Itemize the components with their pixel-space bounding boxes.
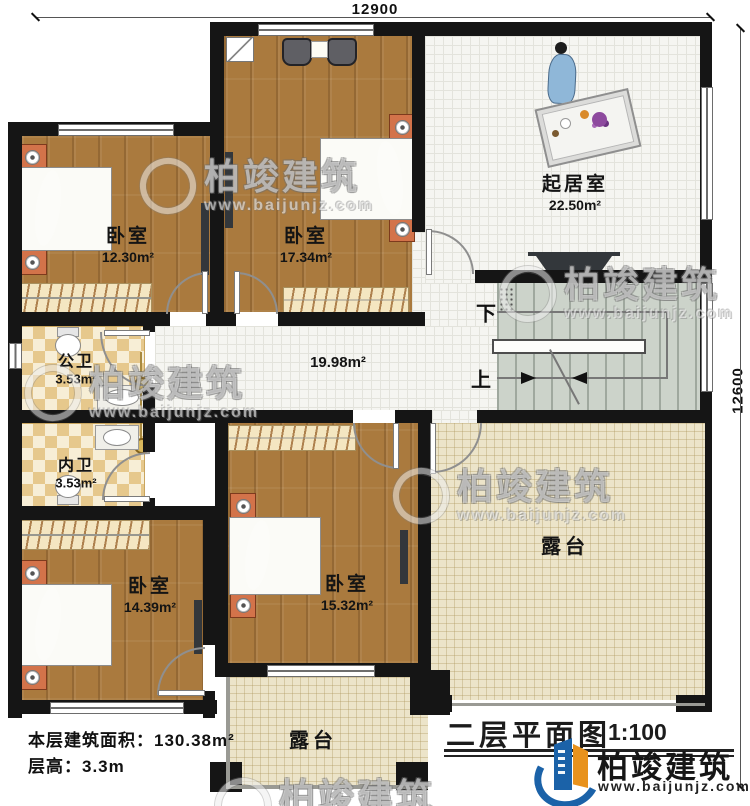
room-label-terrace-bottom: 露台	[289, 729, 337, 753]
tv-stand	[528, 252, 620, 256]
wall-bedroom-bl-right-a	[203, 506, 215, 645]
tv	[225, 152, 233, 228]
window	[58, 124, 174, 136]
wardrobe	[228, 425, 356, 451]
wall-hall-bottom-post	[395, 410, 432, 423]
door-leaf	[393, 423, 399, 469]
stair-handrail	[492, 339, 646, 354]
stair-landing-line-top	[497, 311, 668, 313]
door-leaf	[104, 496, 150, 502]
floor-height-text: 层高：3.3m	[28, 752, 125, 777]
room-label-bath-public: 公卫 3.53m²	[55, 353, 96, 388]
room-label-bedroom-tm: 卧室 17.34m²	[280, 226, 332, 266]
room-name: 露台	[289, 729, 337, 753]
wardrobe	[18, 283, 152, 313]
bed	[18, 584, 112, 666]
wall-bath-right-b	[143, 387, 155, 452]
room-area: 3.53m²	[55, 372, 96, 388]
window	[267, 665, 375, 677]
stair-arrow-left	[572, 372, 587, 384]
wardrobe	[20, 520, 150, 550]
flower-purple	[592, 112, 607, 127]
window	[258, 24, 374, 36]
stair-landing-line-right	[666, 311, 668, 379]
floor-terrace-doorway	[432, 410, 477, 423]
room-name: 卧室	[102, 226, 154, 249]
room-area: 15.32m²	[321, 597, 373, 614]
floor-terrace-right	[430, 423, 705, 700]
dimension-top-line	[35, 17, 711, 18]
tv	[400, 530, 408, 584]
dimension-right: 12600	[730, 361, 747, 421]
person-body	[547, 53, 578, 104]
person-head	[555, 42, 567, 54]
chair	[327, 38, 357, 66]
room-area: 14.39m²	[124, 599, 176, 616]
sink	[95, 425, 139, 450]
door-leaf	[202, 271, 208, 314]
wall-hall-bottom	[155, 410, 353, 423]
room-name: 卧室	[124, 576, 176, 599]
flower-orange	[580, 110, 589, 119]
room-name: 露台	[541, 535, 589, 559]
brand-website: www.baijunjz.com	[598, 778, 750, 794]
wall-hall-top-b	[206, 312, 236, 326]
chair	[282, 38, 312, 66]
room-area: 19.98m²	[310, 354, 366, 372]
wall-bedroom-bm-left	[215, 410, 228, 677]
nightstand	[18, 560, 47, 586]
wardrobe	[283, 287, 409, 313]
door-leaf	[158, 690, 205, 696]
logo-building-blue	[554, 736, 572, 790]
shaft-symbol	[226, 37, 254, 62]
window	[50, 702, 184, 714]
door-leaf	[104, 330, 150, 336]
nightstand	[230, 493, 256, 519]
stair-arrow-right	[521, 372, 536, 384]
dimension-right-line	[740, 28, 741, 788]
wall-living-stairs-divider	[475, 270, 712, 283]
room-label-bedroom-bm: 卧室 15.32m²	[321, 574, 373, 614]
wall-stairs-bottom	[477, 410, 712, 423]
stairs-down-label: 下	[476, 298, 496, 327]
door-leaf	[234, 271, 240, 314]
window	[701, 283, 713, 392]
room-area: 3.53m²	[55, 476, 96, 492]
wall-hall-top-c	[278, 312, 425, 326]
side-table	[311, 41, 328, 58]
brand-logo-icon	[534, 734, 592, 798]
room-area: 12.30m²	[102, 249, 154, 266]
nightstand	[18, 249, 47, 275]
logo-building-orange	[573, 742, 588, 788]
wall-bedroom-bl-top	[8, 506, 217, 520]
room-name: 卧室	[321, 574, 373, 597]
table-cup	[552, 130, 559, 137]
stair-dot-hatch	[499, 287, 515, 312]
stairs-up-label: 上	[471, 364, 491, 393]
door-leaf	[426, 229, 432, 275]
terrace-post	[430, 695, 452, 712]
wall-bath-right-a	[143, 312, 155, 332]
wall-bath-divider	[8, 410, 155, 423]
dimension-top: 12900	[340, 1, 410, 18]
bed	[320, 138, 422, 220]
wall-terrace-right-edge	[705, 423, 712, 705]
room-name: 起居室	[542, 174, 608, 197]
room-label-bedroom-bl: 卧室 14.39m²	[124, 576, 176, 616]
room-name: 卧室	[280, 226, 332, 249]
wall-bedroom-living-divider	[412, 36, 425, 232]
nightstand	[18, 664, 47, 690]
tv	[536, 256, 612, 271]
table-cup	[560, 118, 571, 129]
room-label-hallway: 19.98m²	[310, 354, 366, 372]
wall-bedrooms-divider-top	[210, 22, 224, 326]
floor-area-text: 本层建筑面积：130.38m²	[28, 726, 235, 751]
terrace-parapet-bottom	[226, 785, 428, 789]
bed	[18, 167, 112, 251]
room-label-bath-private: 内卫 3.53m²	[55, 457, 96, 492]
room-area: 22.50m²	[542, 197, 608, 214]
room-name: 公卫	[55, 353, 96, 372]
door-leaf	[430, 423, 436, 474]
room-name: 内卫	[55, 457, 96, 476]
room-label-terrace-right: 露台	[541, 535, 589, 559]
floor-plan-canvas: 卧室 12.30m² 卧室 17.34m² 起居室 22.50m² 公卫 3.5…	[0, 0, 750, 806]
window	[701, 87, 713, 220]
room-area: 17.34m²	[280, 249, 332, 266]
room-label-living: 起居室 22.50m²	[542, 174, 608, 214]
window	[9, 343, 22, 369]
terrace-parapet-bottom-right	[452, 703, 705, 706]
tv	[201, 203, 209, 275]
room-label-bedroom-tl: 卧室 12.30m²	[102, 226, 154, 266]
tv	[194, 600, 202, 654]
nightstand	[230, 592, 256, 618]
bed	[229, 517, 321, 595]
